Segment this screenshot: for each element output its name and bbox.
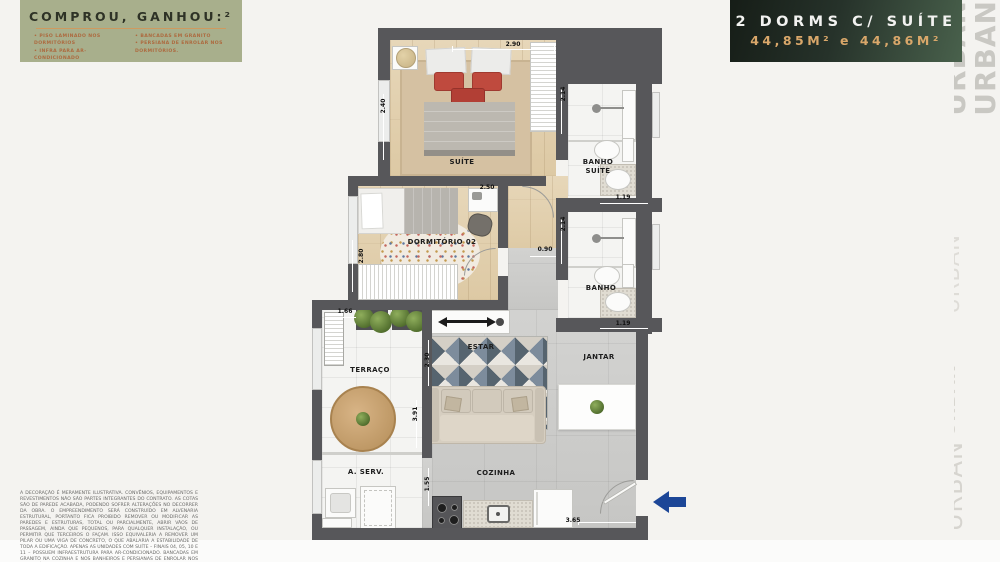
sofa-seat: [440, 415, 534, 441]
promo-bullets-right: • BANCADAS EM GRANITO • PERSIANA DE ENRO…: [135, 33, 228, 62]
urban-watermark-word: URBAN: [972, 0, 1000, 116]
promo-bullet: • BANCADAS EM GRANITO: [135, 33, 228, 40]
toilet-bowl: [594, 140, 620, 160]
estar-sofa: [428, 386, 546, 444]
promo-bullet: • PISO LAMINADO NOS DORMITÓRIOS: [34, 33, 127, 48]
stove: [432, 496, 462, 530]
room-label-banho: BANHO: [576, 284, 626, 292]
dim-dorm2-width: 2.50: [474, 184, 500, 192]
window: [312, 460, 322, 514]
dimension-line: [600, 203, 648, 204]
hall-floor-tile: [508, 248, 558, 310]
dimension-line: [600, 328, 648, 329]
bed-footboard: [424, 150, 515, 156]
dim-dorm2-depth: 2.80: [358, 243, 366, 269]
dimension-line: [578, 522, 636, 523]
room-label-estar: ESTAR: [458, 343, 504, 351]
room-label-line: SUÍTE: [572, 167, 624, 176]
unit-type-title: 2 DORMS C/ SUÍTE: [736, 14, 957, 30]
tv-icon: [446, 320, 488, 323]
unit-type-badge: 2 DORMS C/ SUÍTE 44,85M² e 44,86M²: [730, 0, 962, 62]
sofa-pillow: [511, 396, 529, 412]
sofa-armrest: [535, 388, 544, 442]
promo-divider: [36, 28, 226, 29]
wall: [636, 334, 648, 480]
urban-watermark-word: URBAN: [954, 318, 970, 359]
dimension-line: [452, 49, 554, 50]
urban-watermark-word: URBAN: [954, 234, 970, 313]
sink-faucet: [496, 512, 500, 516]
sofa-pillow: [444, 396, 462, 412]
urban-watermark-strip: URBANURBANURBANURBANURBANURBANURBANURBAN…: [954, 0, 1000, 562]
window: [348, 196, 358, 264]
stove-burner: [449, 515, 459, 525]
dim-banho-suite-width: 1.19: [610, 194, 636, 202]
room-label-jantar: JANTAR: [574, 353, 624, 361]
wall: [348, 176, 546, 186]
wall: [422, 300, 432, 458]
dorm2-wardrobe: [358, 264, 458, 300]
dimension-line: [352, 240, 353, 292]
dimension-tick: [452, 46, 453, 52]
terraco-aserv-divider: [322, 452, 422, 455]
urban-watermark-word: URBAN: [954, 364, 970, 436]
wall: [312, 528, 648, 540]
room-label-terraco: TERRAÇO: [342, 366, 398, 374]
room-label-aserv: A. SERV.: [340, 468, 392, 476]
urban-watermark-word: URBAN: [954, 441, 970, 531]
dim-banho-depth: 2.14: [560, 211, 568, 237]
console-speaker-icon: [496, 318, 504, 326]
shower-arm: [600, 107, 624, 109]
terraco-lounger: [324, 312, 344, 366]
sofa-cushion: [472, 389, 502, 413]
entry-arrow-icon: [653, 491, 669, 513]
plant: [370, 311, 392, 333]
bed-blanket: [404, 188, 458, 234]
fridge-handle: [536, 492, 538, 525]
dorm2-bed: [358, 188, 458, 234]
stove-burner: [438, 517, 445, 524]
stove-burner: [451, 504, 458, 511]
dim-hall-width: 0.90: [532, 246, 558, 254]
bed-duvet: [424, 102, 515, 152]
promo-bullets-left: • PISO LAMINADO NOS DORMITÓRIOS • INFRA …: [34, 33, 127, 62]
dim-suite-width: 2.90: [500, 41, 526, 49]
urban-watermark-word: URBAN: [954, 121, 970, 176]
bed-pillow: [360, 193, 383, 230]
shower-arm: [600, 237, 624, 239]
dim-cozinha-depth: 1.55: [424, 471, 432, 497]
urban-watermark-word: URBAN: [954, 180, 970, 229]
table-plant: [356, 412, 370, 426]
bed-pillow: [470, 47, 511, 75]
promo-title: COMPROU, GANHOU:²: [20, 9, 242, 24]
window: [312, 328, 322, 390]
banho-shelf: [622, 218, 636, 268]
room-label-suite: SUÍTE: [432, 158, 492, 166]
wall: [498, 184, 508, 248]
dim-banho-suite-depth: 2.14: [560, 81, 568, 107]
promo-bullet: • INFRA PARA AR-CONDICIONADO: [34, 48, 127, 63]
dimension-line: [530, 256, 556, 257]
suite-lamp: [396, 48, 416, 68]
suite-bed: [424, 46, 515, 158]
desk-object: [472, 192, 482, 200]
dim-terraco-width: 1.66: [332, 308, 358, 316]
dim-cozinha-width: 3.65: [560, 517, 586, 525]
wall: [378, 28, 562, 40]
dimension-tick: [554, 46, 555, 52]
promo-bullet-columns: • PISO LAMINADO NOS DORMITÓRIOS • INFRA …: [20, 33, 242, 62]
dim-estar-depth: 3.91: [412, 401, 420, 427]
bed-pillow: [425, 47, 466, 75]
room-label-line: BANHO: [572, 158, 624, 167]
sink-basin: [605, 292, 631, 312]
room-label-dormitorio2: DORMITÓRIO 02: [398, 238, 486, 246]
window: [652, 224, 660, 270]
tank-basin: [330, 493, 351, 513]
toilet-bowl: [594, 266, 620, 286]
wall: [498, 276, 508, 310]
unit-area-text: 44,85M² e 44,86M²: [750, 33, 942, 48]
banho-suite-shelf: [622, 90, 636, 140]
stove-burner: [437, 503, 447, 513]
laundry-mat: [322, 518, 352, 528]
wall: [556, 318, 662, 332]
window: [652, 92, 660, 138]
entry-arrow-shaft: [669, 497, 686, 507]
dimension-line: [328, 317, 356, 318]
floorplan-marketing-page: COMPROU, GANHOU:² • PISO LAMINADO NOS DO…: [0, 0, 1000, 562]
room-label-banho-suite: BANHO SUÍTE: [572, 158, 624, 176]
suite-wardrobe: [530, 42, 558, 132]
legal-disclaimer: A DECORAÇÃO É MERAMENTE ILUSTRATIVA. CON…: [20, 491, 198, 562]
dim-estar-width: 2.30: [424, 347, 432, 373]
washer-door: [364, 490, 392, 526]
table-plant: [590, 400, 604, 414]
wall: [556, 198, 662, 212]
room-label-cozinha: COZINHA: [468, 469, 524, 477]
dim-banho-width: 1.19: [610, 320, 636, 328]
dim-suite-depth: 2.40: [380, 93, 388, 119]
wall: [556, 28, 662, 84]
promo-box: COMPROU, GANHOU:² • PISO LAMINADO NOS DO…: [20, 0, 242, 62]
promo-bullet: • PERSIANA DE ENROLAR NOS DORMITÓRIOS.: [135, 40, 228, 55]
